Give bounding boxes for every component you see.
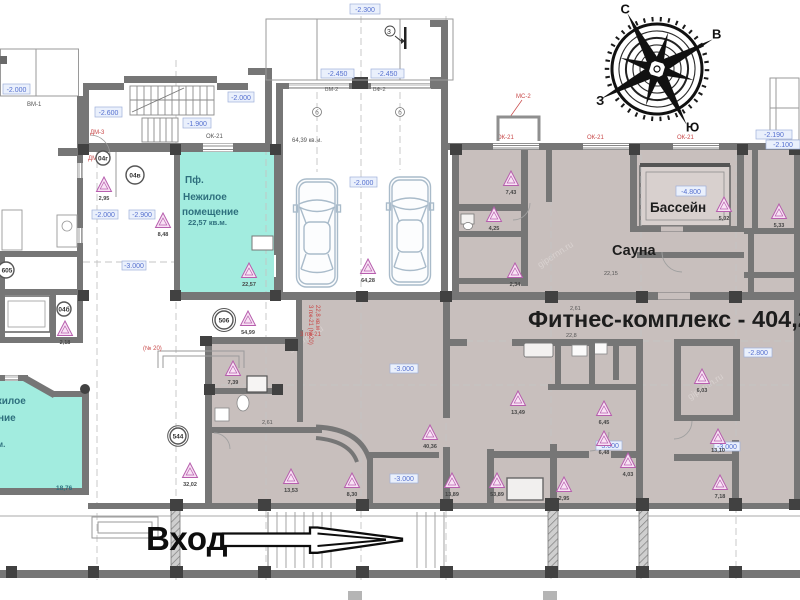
svg-text:4,25: 4,25 (489, 226, 500, 232)
svg-text:Бассейн: Бассейн (650, 200, 706, 215)
svg-text:544: 544 (173, 434, 184, 441)
svg-text:6,03: 6,03 (697, 388, 708, 394)
svg-text:-2.900: -2.900 (132, 212, 152, 219)
svg-text:С: С (620, 1, 630, 16)
svg-text:8,48: 8,48 (158, 232, 169, 238)
svg-text:помещение: помещение (182, 207, 239, 218)
svg-text:щение: щение (0, 413, 16, 424)
svg-text:-3.000: -3.000 (394, 476, 414, 483)
svg-text:ОК-21: ОК-21 (587, 135, 604, 141)
svg-text:13,53: 13,53 (284, 488, 298, 494)
svg-text:506: 506 (219, 318, 230, 325)
svg-text:2,61: 2,61 (262, 420, 273, 426)
svg-text:18,76: 18,76 (56, 485, 73, 492)
svg-text:3: 3 (387, 29, 391, 36)
svg-text:ОК-21: ОК-21 (677, 135, 694, 141)
svg-text:-1.900: -1.900 (187, 121, 207, 128)
svg-text:04в: 04в (129, 173, 140, 180)
svg-text:7,18: 7,18 (715, 494, 726, 500)
svg-text:Вход: Вход (146, 520, 228, 557)
svg-text:-2.000: -2.000 (231, 95, 251, 102)
svg-text:8,30: 8,30 (347, 492, 358, 498)
svg-text:-4.800: -4.800 (681, 189, 701, 196)
svg-text:22,8: 22,8 (566, 333, 577, 339)
svg-text:-2.190: -2.190 (764, 132, 784, 139)
svg-text:ОК-21: ОК-21 (497, 135, 514, 141)
svg-text:Пф.: Пф. (185, 174, 204, 186)
svg-text:22,15: 22,15 (604, 271, 618, 277)
svg-text:13,49: 13,49 (511, 410, 525, 416)
svg-text:Фитнес-комплекс - 404,26: Фитнес-комплекс - 404,26 (528, 306, 800, 332)
svg-text:2,34: 2,34 (510, 282, 522, 288)
svg-text:-2.600: -2.600 (99, 110, 119, 117)
svg-text:2,61: 2,61 (570, 306, 581, 312)
svg-text:64,28: 64,28 (361, 278, 375, 284)
svg-text:04б: 04б (58, 306, 69, 314)
svg-text:ВФ-2: ВФ-2 (373, 87, 386, 93)
svg-text:5,02: 5,02 (719, 216, 730, 222)
svg-text:ВМ-2: ВМ-2 (325, 87, 338, 93)
svg-text:40,36: 40,36 (423, 444, 437, 450)
svg-text:Сауна: Сауна (612, 243, 657, 259)
svg-text:-2.300: -2.300 (355, 7, 375, 14)
svg-text:(№ 20): (№ 20) (143, 345, 162, 352)
svg-text:-2.450: -2.450 (328, 71, 348, 78)
svg-text:2,95: 2,95 (99, 196, 110, 202)
svg-text:6,48: 6,48 (599, 450, 610, 456)
svg-text:-2.000: -2.000 (354, 180, 374, 187)
svg-text:-2.800: -2.800 (748, 350, 768, 357)
svg-text:Нежилое: Нежилое (0, 396, 26, 407)
svg-text:3 пж-21 (№20): 3 пж-21 (№20) (307, 305, 314, 345)
svg-text:б: б (398, 111, 402, 117)
svg-text:6,45: 6,45 (599, 420, 610, 426)
svg-text:2,18: 2,18 (60, 340, 71, 346)
svg-text:605: 605 (2, 268, 13, 275)
svg-text:4,03: 4,03 (623, 472, 634, 478)
svg-text:б: б (315, 111, 319, 117)
svg-text:Нежилое: Нежилое (183, 192, 227, 203)
svg-text:-2.000: -2.000 (95, 212, 115, 219)
svg-text:22,8 кв.м: 22,8 кв.м (314, 305, 320, 330)
svg-text:-2.100: -2.100 (773, 142, 793, 149)
svg-text:22,57: 22,57 (242, 282, 256, 288)
svg-text:13,89: 13,89 (445, 492, 459, 498)
svg-text:22,57 кв.м.: 22,57 кв.м. (188, 218, 227, 227)
svg-text:-3.000: -3.000 (394, 366, 414, 373)
svg-text:2,95: 2,95 (559, 496, 570, 502)
svg-text:Ю: Ю (686, 120, 699, 135)
svg-text:53,89: 53,89 (490, 492, 504, 498)
svg-text:32,02: 32,02 (183, 482, 197, 488)
svg-text:5,33: 5,33 (774, 223, 785, 229)
svg-text:04г: 04г (98, 156, 108, 163)
svg-text:13,10: 13,10 (711, 448, 725, 454)
svg-text:З: З (596, 93, 604, 108)
svg-text:7,39: 7,39 (228, 380, 239, 386)
svg-text:ВМ-1: ВМ-1 (27, 102, 42, 108)
svg-text:-3.000: -3.000 (124, 263, 144, 270)
svg-text:МС-2: МС-2 (516, 94, 531, 100)
svg-text:7,43: 7,43 (506, 190, 517, 196)
svg-text:ДМ-3: ДМ-3 (90, 130, 105, 136)
svg-text:64,39 кв.м.: 64,39 кв.м. (292, 138, 322, 144)
svg-text:В: В (712, 26, 721, 41)
svg-text:-2.450: -2.450 (378, 71, 398, 78)
svg-text:54,99: 54,99 (241, 330, 255, 336)
svg-text:-2.000: -2.000 (7, 87, 27, 94)
svg-text:ОК-21: ОК-21 (206, 134, 223, 140)
svg-text:кв.м.: кв.м. (0, 440, 5, 449)
